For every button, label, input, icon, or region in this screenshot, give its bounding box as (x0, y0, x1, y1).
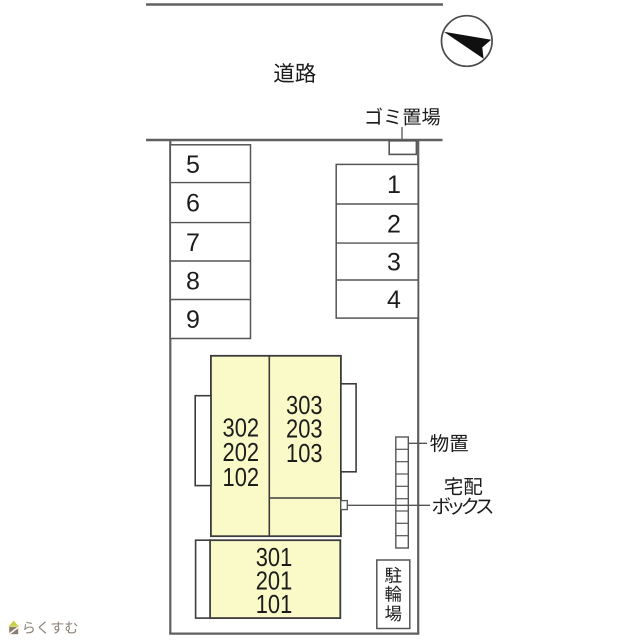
svg-text:6: 6 (186, 190, 200, 218)
svg-text:102: 102 (223, 462, 260, 492)
svg-text:2: 2 (387, 211, 401, 239)
svg-text:9: 9 (186, 306, 200, 334)
svg-text:5: 5 (186, 151, 200, 179)
svg-text:4: 4 (387, 286, 401, 314)
svg-text:8: 8 (186, 267, 200, 295)
svg-text:3: 3 (387, 249, 401, 277)
svg-text:101: 101 (256, 589, 293, 619)
svg-text:1: 1 (387, 171, 401, 199)
svg-text:103: 103 (286, 438, 323, 468)
svg-text:7: 7 (186, 229, 200, 257)
